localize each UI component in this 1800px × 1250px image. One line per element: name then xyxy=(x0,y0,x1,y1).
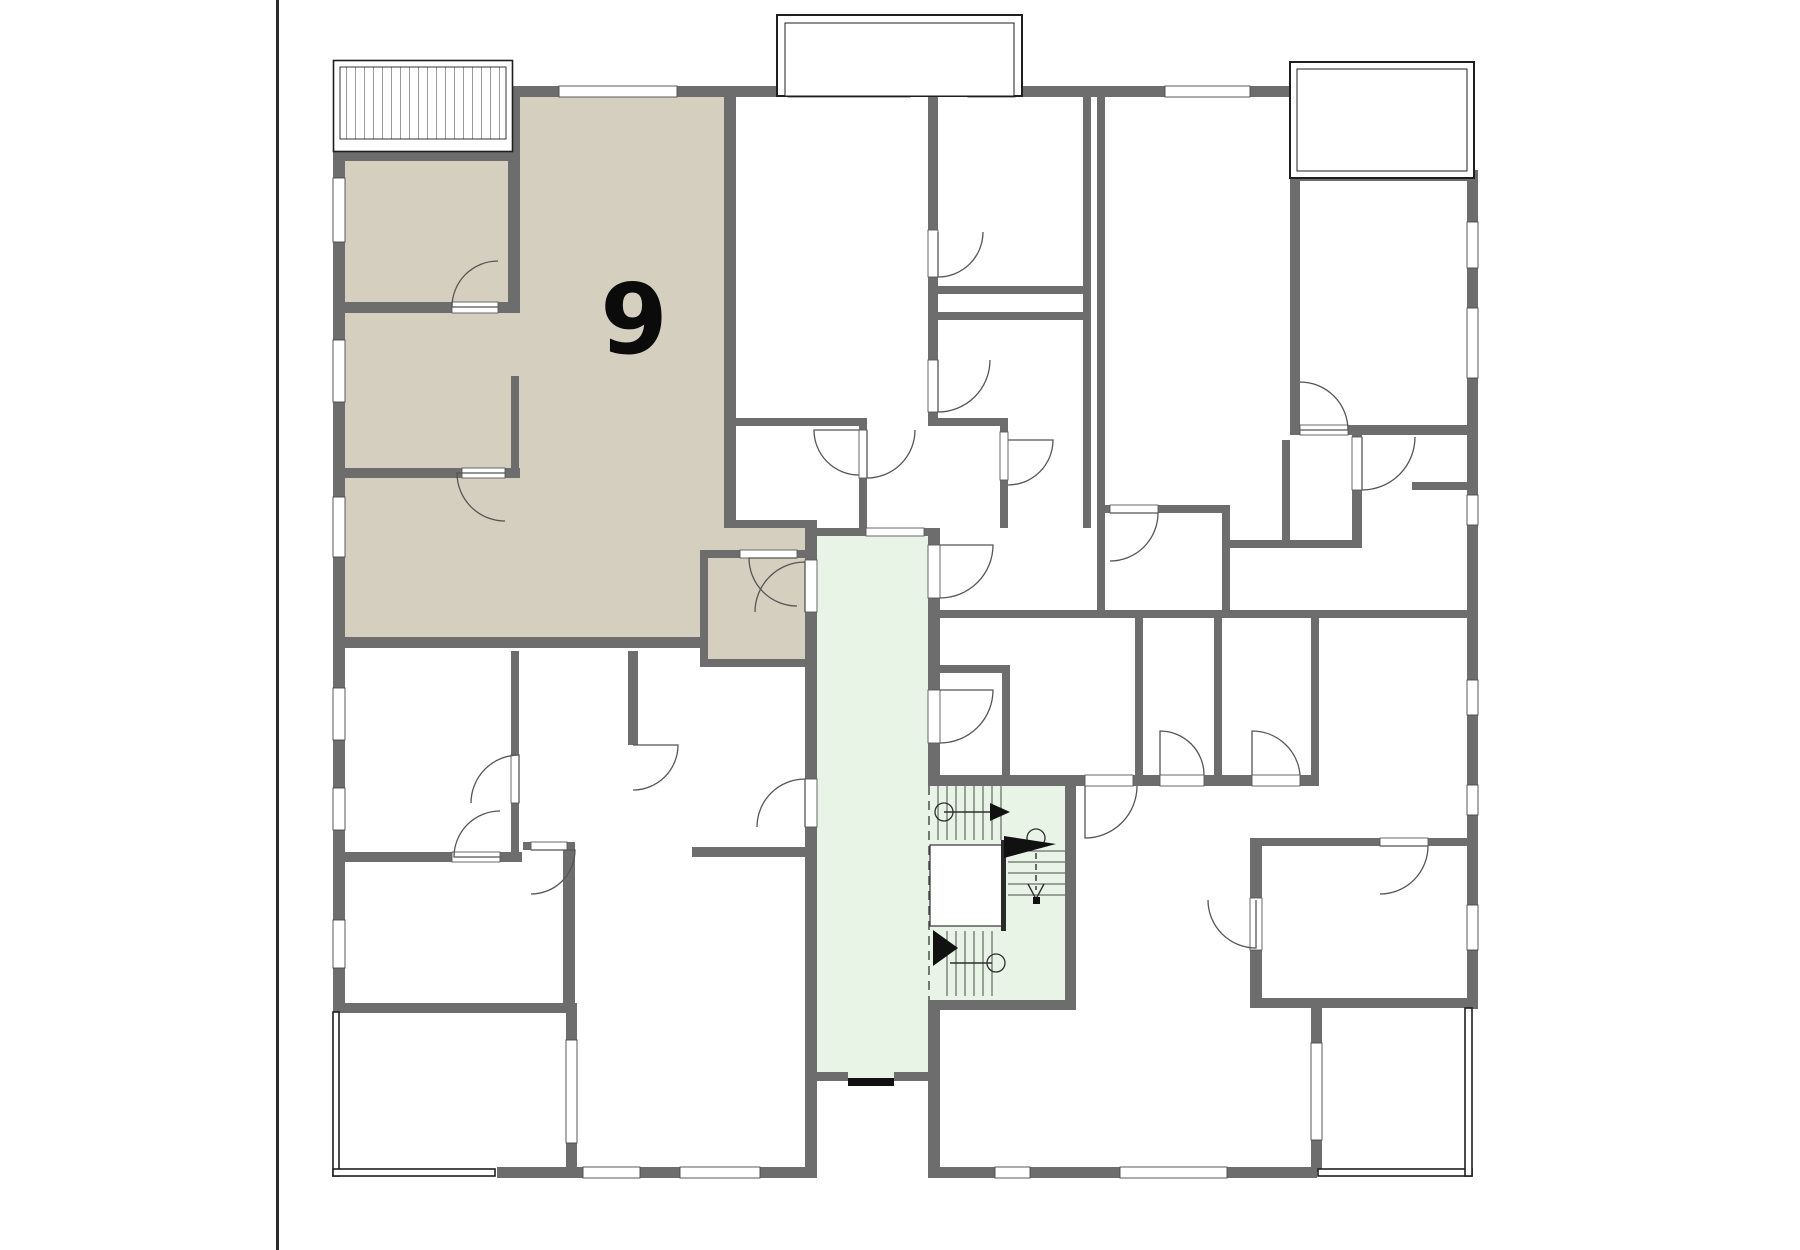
balcony-top-left-hatched xyxy=(334,61,513,152)
page-edge-line xyxy=(276,0,279,1250)
floor-plan-page: 9 xyxy=(0,0,1800,1250)
balcony-top-right xyxy=(1290,62,1474,178)
main-entrance-door xyxy=(848,1078,894,1086)
stair-landing xyxy=(930,845,1003,926)
unit-9-label: 9 xyxy=(600,263,668,376)
stair-direction-arrow-down xyxy=(1033,897,1040,904)
floor-plan-drawing: 9 xyxy=(0,0,1800,1250)
balcony-top-center xyxy=(777,15,1022,96)
